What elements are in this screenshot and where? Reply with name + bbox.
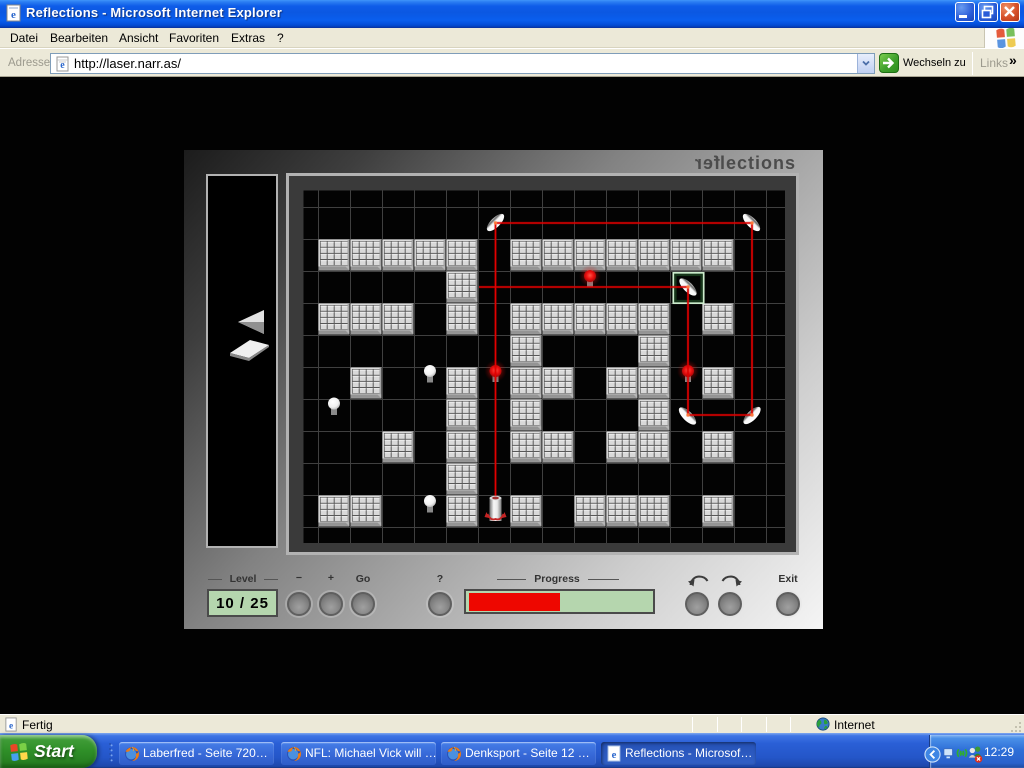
svg-text:e: e [11,9,16,21]
svg-text:e: e [612,750,617,761]
svg-text:e: e [9,721,13,731]
